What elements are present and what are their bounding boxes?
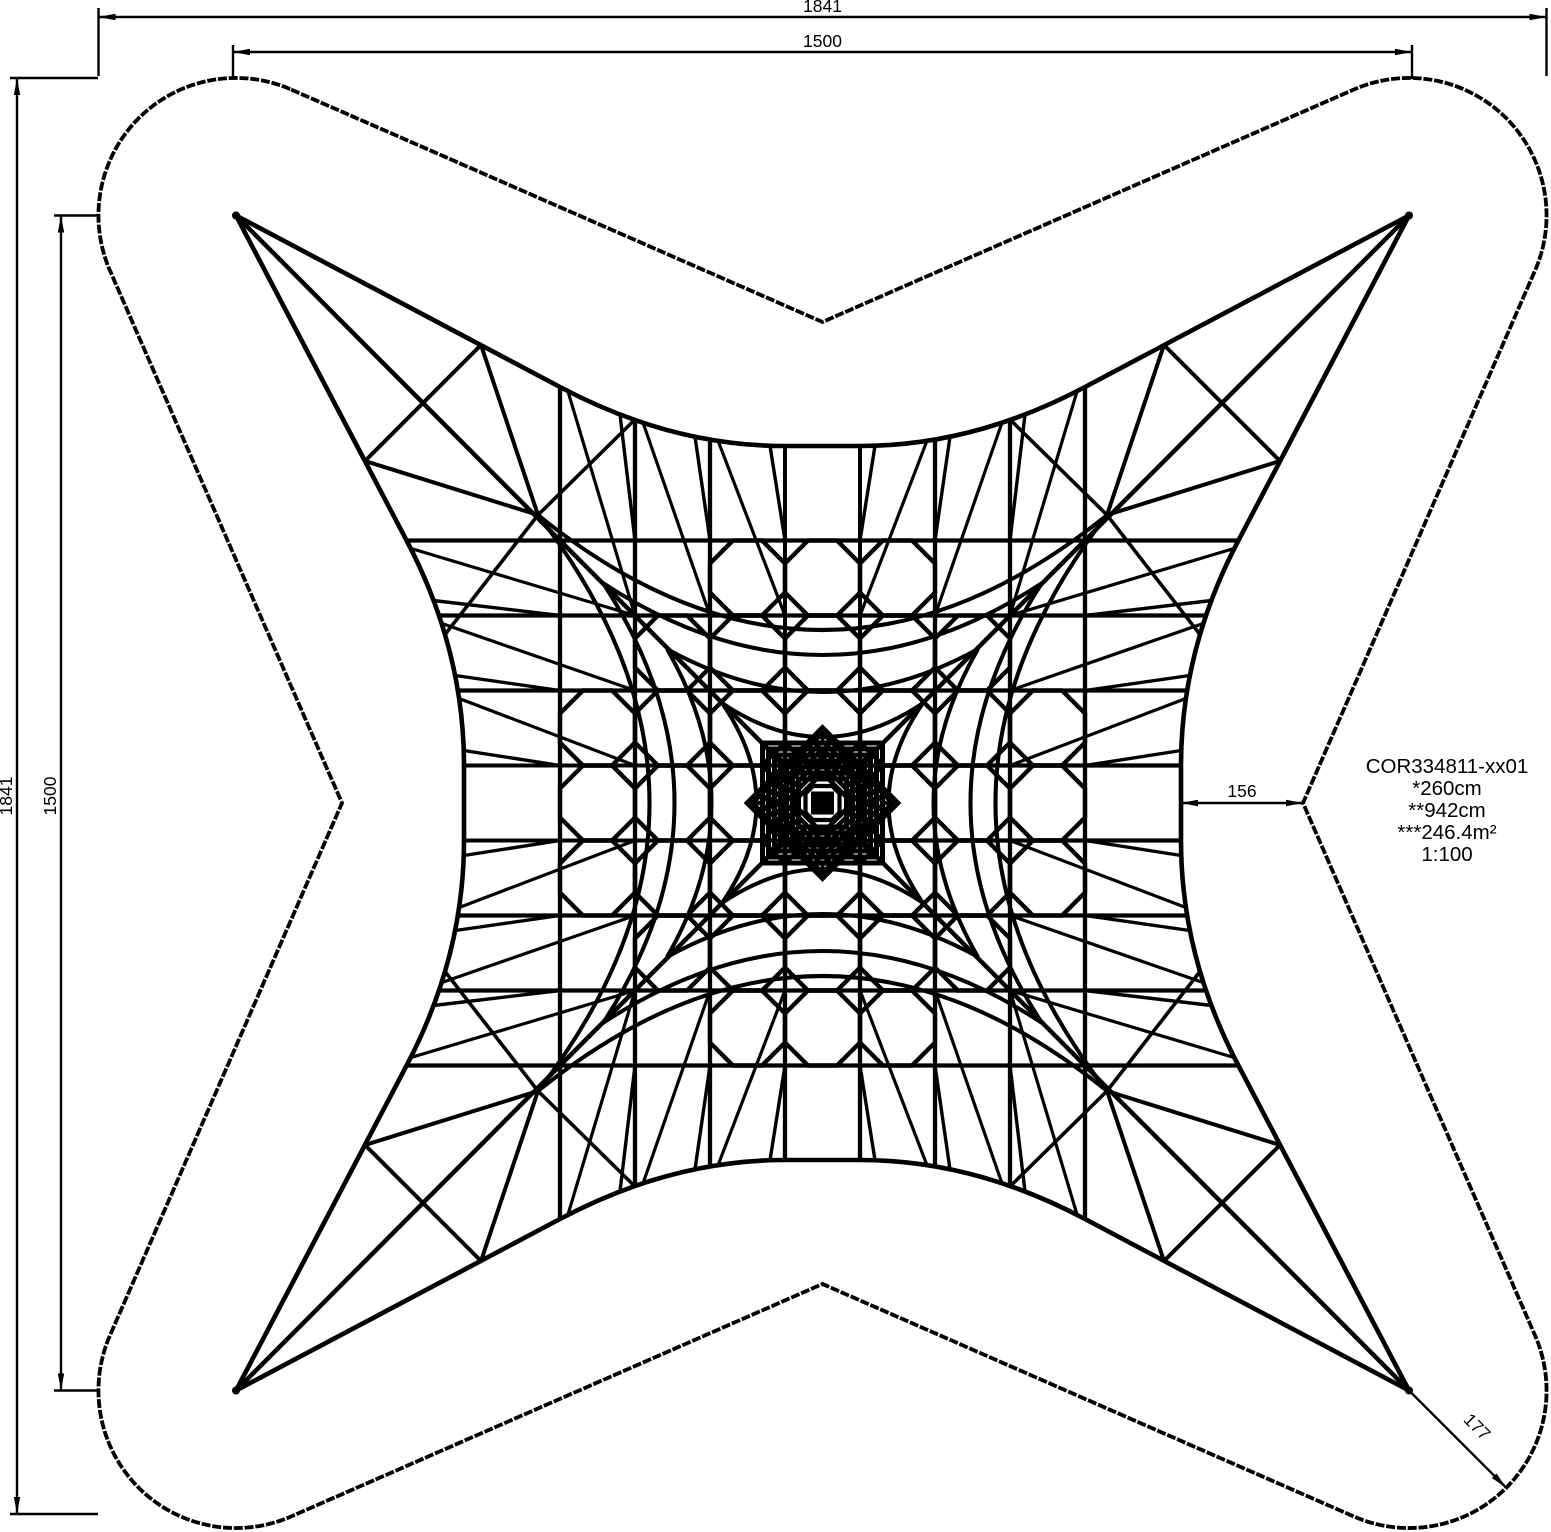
svg-text:156: 156	[1227, 781, 1256, 801]
svg-text:*260cm: *260cm	[1412, 777, 1482, 800]
svg-text:1500: 1500	[40, 776, 60, 815]
svg-text:1841: 1841	[803, 0, 842, 16]
svg-text:1841: 1841	[0, 777, 16, 816]
svg-text:***246.4m²: ***246.4m²	[1397, 821, 1496, 844]
svg-text:**942cm: **942cm	[1408, 799, 1486, 822]
svg-text:COR334811-xx01: COR334811-xx01	[1366, 755, 1529, 778]
svg-text:1500: 1500	[803, 31, 842, 51]
svg-text:1:100: 1:100	[1421, 843, 1472, 866]
